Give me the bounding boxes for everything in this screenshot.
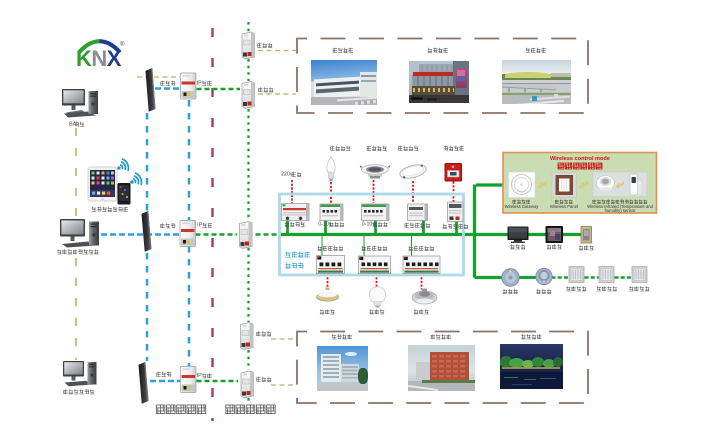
svg-text:IP: IP bbox=[197, 223, 202, 229]
svg-text:IP: IP bbox=[197, 81, 202, 87]
svg-text:0-10v: 0-10v bbox=[318, 222, 332, 228]
svg-text:220v: 220v bbox=[281, 172, 293, 178]
svg-text:KNX: KNX bbox=[76, 46, 122, 71]
svg-text:0-10v: 0-10v bbox=[362, 222, 376, 228]
svg-text:®: ® bbox=[120, 41, 125, 48]
svg-text:IP: IP bbox=[197, 373, 202, 379]
